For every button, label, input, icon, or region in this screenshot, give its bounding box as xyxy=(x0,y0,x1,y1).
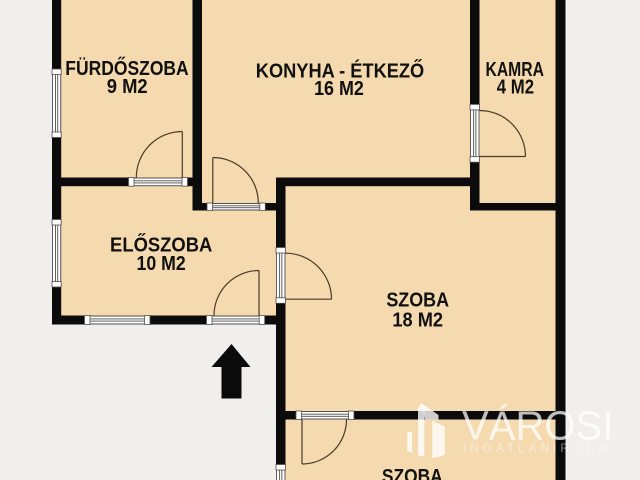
svg-text:SZOBA: SZOBA xyxy=(382,465,443,480)
svg-text:10 M2: 10 M2 xyxy=(137,252,186,275)
svg-text:18 M2: 18 M2 xyxy=(392,308,443,331)
svg-text:4 M2: 4 M2 xyxy=(497,76,534,99)
svg-text:16 M2: 16 M2 xyxy=(314,77,364,100)
svg-text:9 M2: 9 M2 xyxy=(107,75,148,98)
